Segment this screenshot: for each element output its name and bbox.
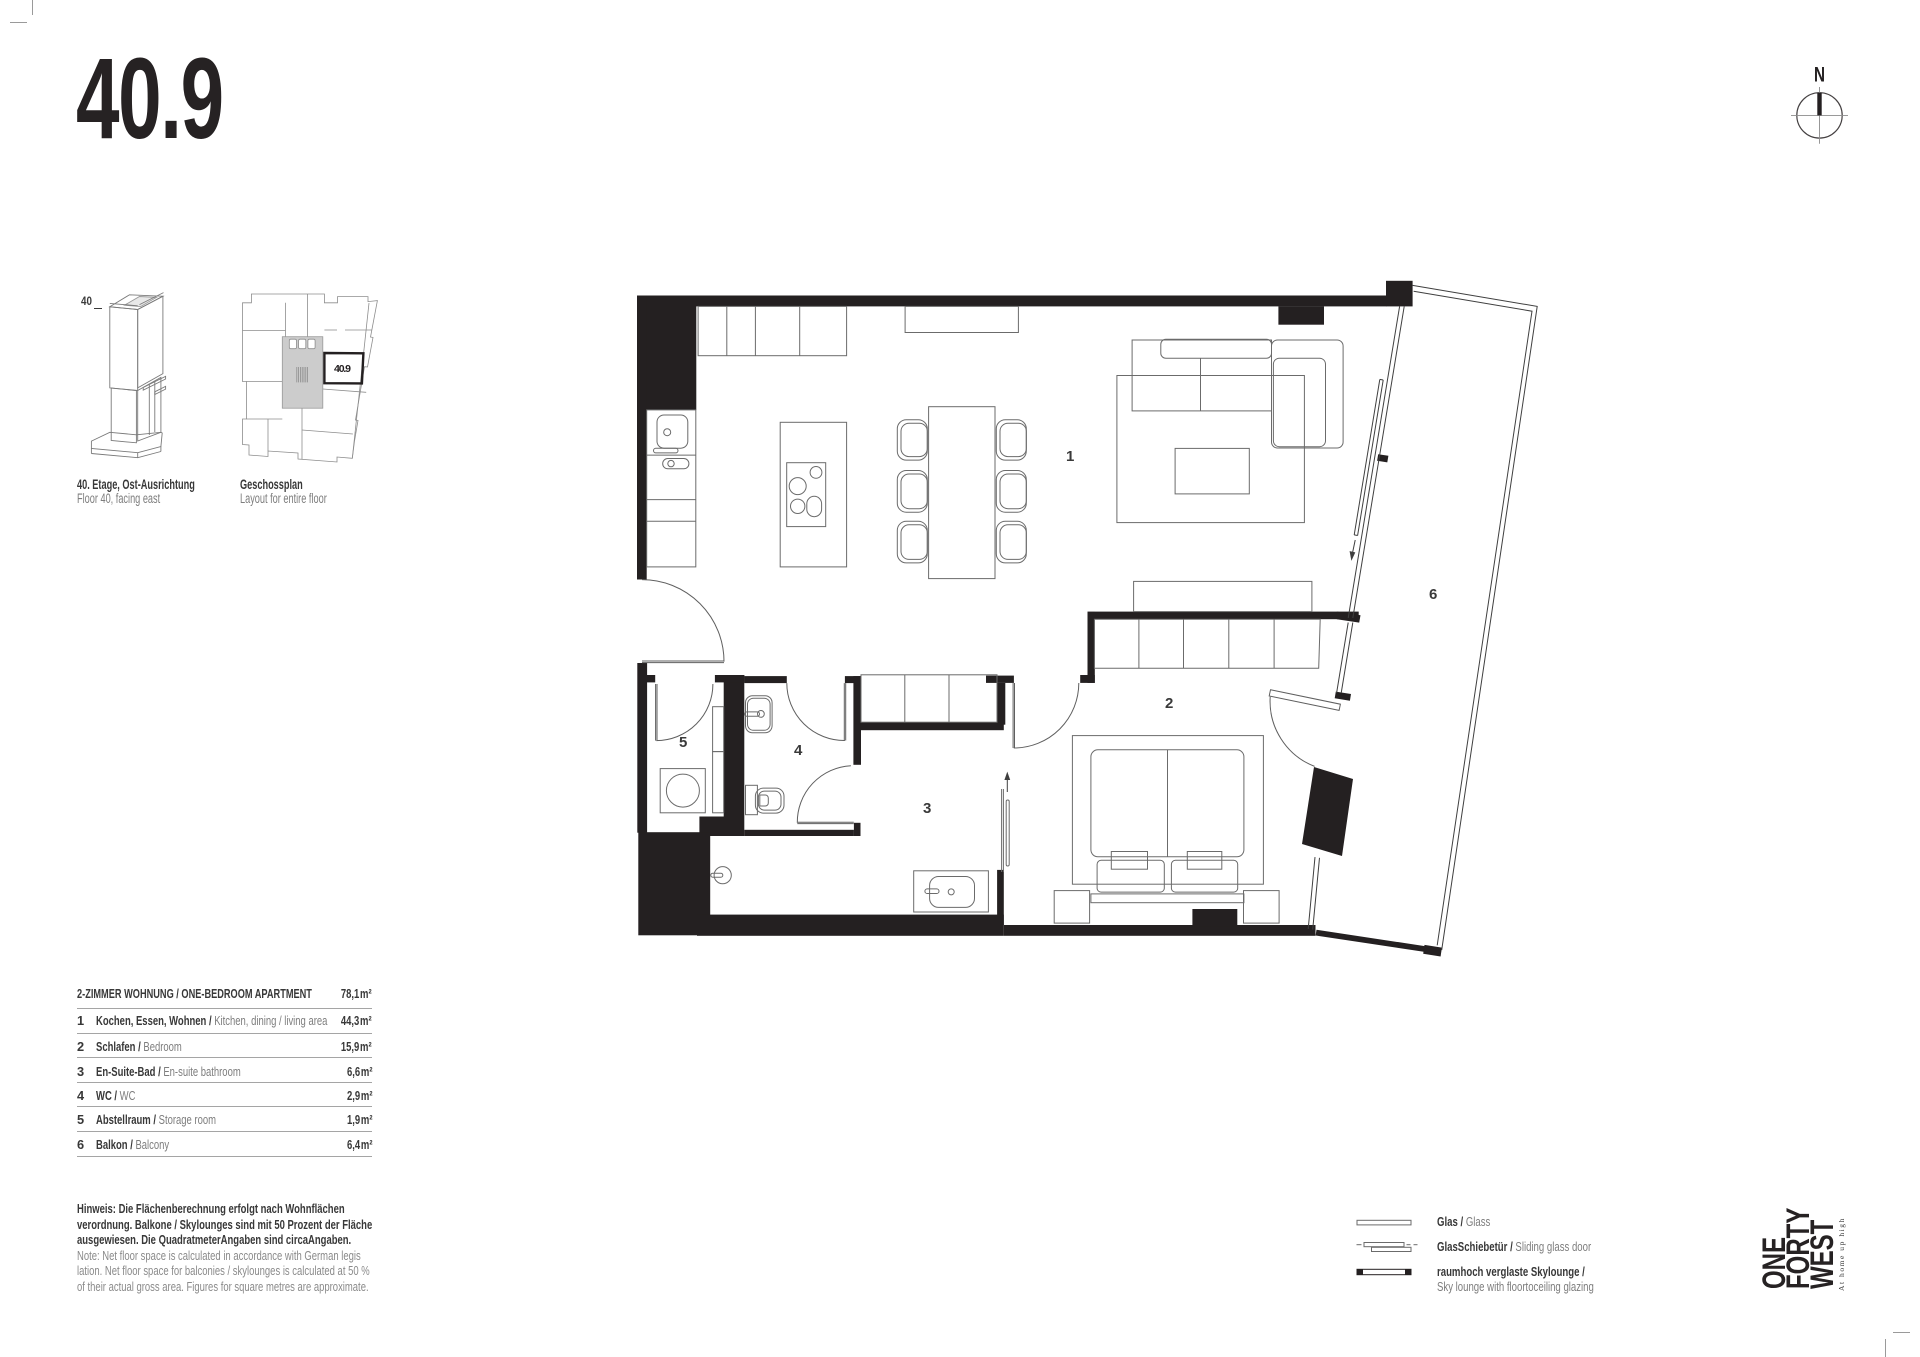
svg-text:2: 2 bbox=[1165, 695, 1173, 712]
svg-text:5: 5 bbox=[679, 734, 687, 751]
svg-text:N: N bbox=[1814, 63, 1825, 87]
svg-text:1: 1 bbox=[1066, 448, 1074, 465]
svg-text:6: 6 bbox=[1429, 586, 1437, 603]
svg-text:4: 4 bbox=[794, 742, 803, 759]
svg-text:40.9: 40.9 bbox=[334, 363, 351, 375]
svg-text:3: 3 bbox=[923, 800, 931, 817]
